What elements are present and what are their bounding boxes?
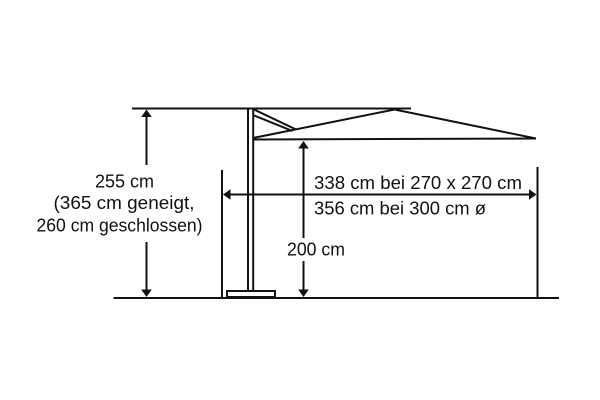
- svg-text:260 cm geschlossen): 260 cm geschlossen): [37, 216, 203, 236]
- svg-text:(365 cm geneigt,: (365 cm geneigt,: [54, 193, 195, 213]
- svg-text:200 cm: 200 cm: [287, 240, 345, 260]
- svg-text:356 cm bei 300 cm ø: 356 cm bei 300 cm ø: [314, 199, 486, 219]
- svg-text:255 cm: 255 cm: [95, 172, 154, 192]
- svg-text:338 cm bei 270 x 270 cm: 338 cm bei 270 x 270 cm: [314, 173, 522, 193]
